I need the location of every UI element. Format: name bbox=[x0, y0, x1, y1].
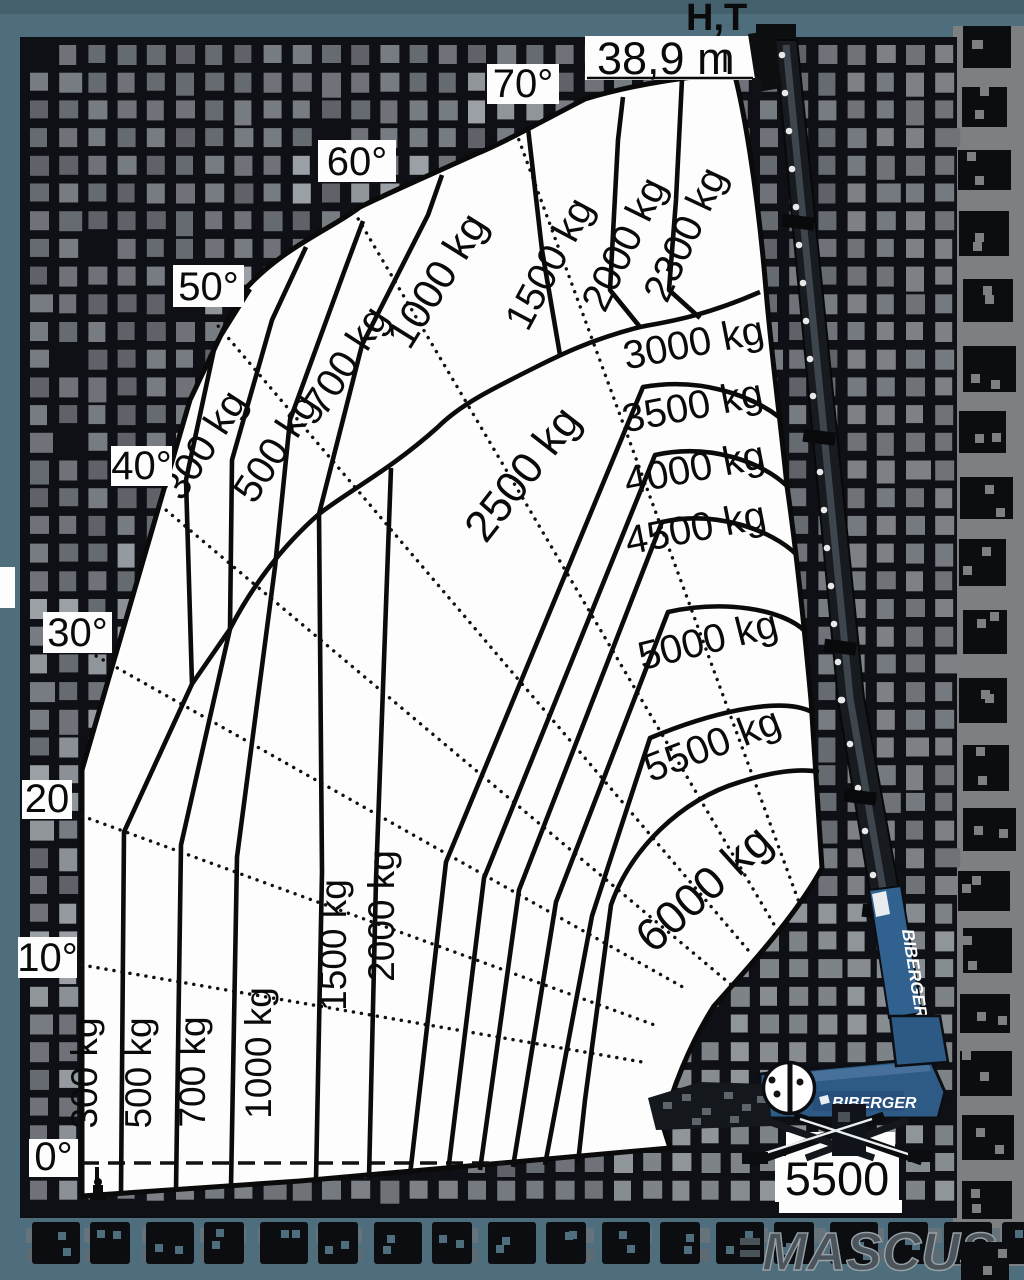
svg-text:2000 kg: 2000 kg bbox=[361, 850, 402, 982]
svg-text:300 kg: 300 kg bbox=[64, 1017, 105, 1128]
svg-text:H,T: H,T bbox=[686, 0, 747, 39]
svg-text:5500: 5500 bbox=[785, 1152, 890, 1205]
svg-text:60°: 60° bbox=[327, 140, 388, 184]
svg-text:MASCUS: MASCUS bbox=[762, 1222, 996, 1280]
svg-text:500 kg: 500 kg bbox=[118, 1017, 159, 1128]
svg-text:20: 20 bbox=[25, 777, 70, 821]
svg-text:1000 kg: 1000 kg bbox=[238, 987, 279, 1119]
svg-text:10°: 10° bbox=[17, 936, 78, 980]
svg-text:1500 kg: 1500 kg bbox=[313, 879, 354, 1011]
svg-text:38,9 m: 38,9 m bbox=[597, 33, 735, 84]
svg-text:70°: 70° bbox=[493, 62, 554, 106]
svg-text:0°: 0° bbox=[34, 1135, 72, 1179]
svg-text:40°: 40° bbox=[111, 444, 172, 488]
svg-text:50°: 50° bbox=[178, 265, 239, 309]
svg-text:700 kg: 700 kg bbox=[172, 1016, 213, 1127]
svg-text:30°: 30° bbox=[47, 611, 108, 655]
